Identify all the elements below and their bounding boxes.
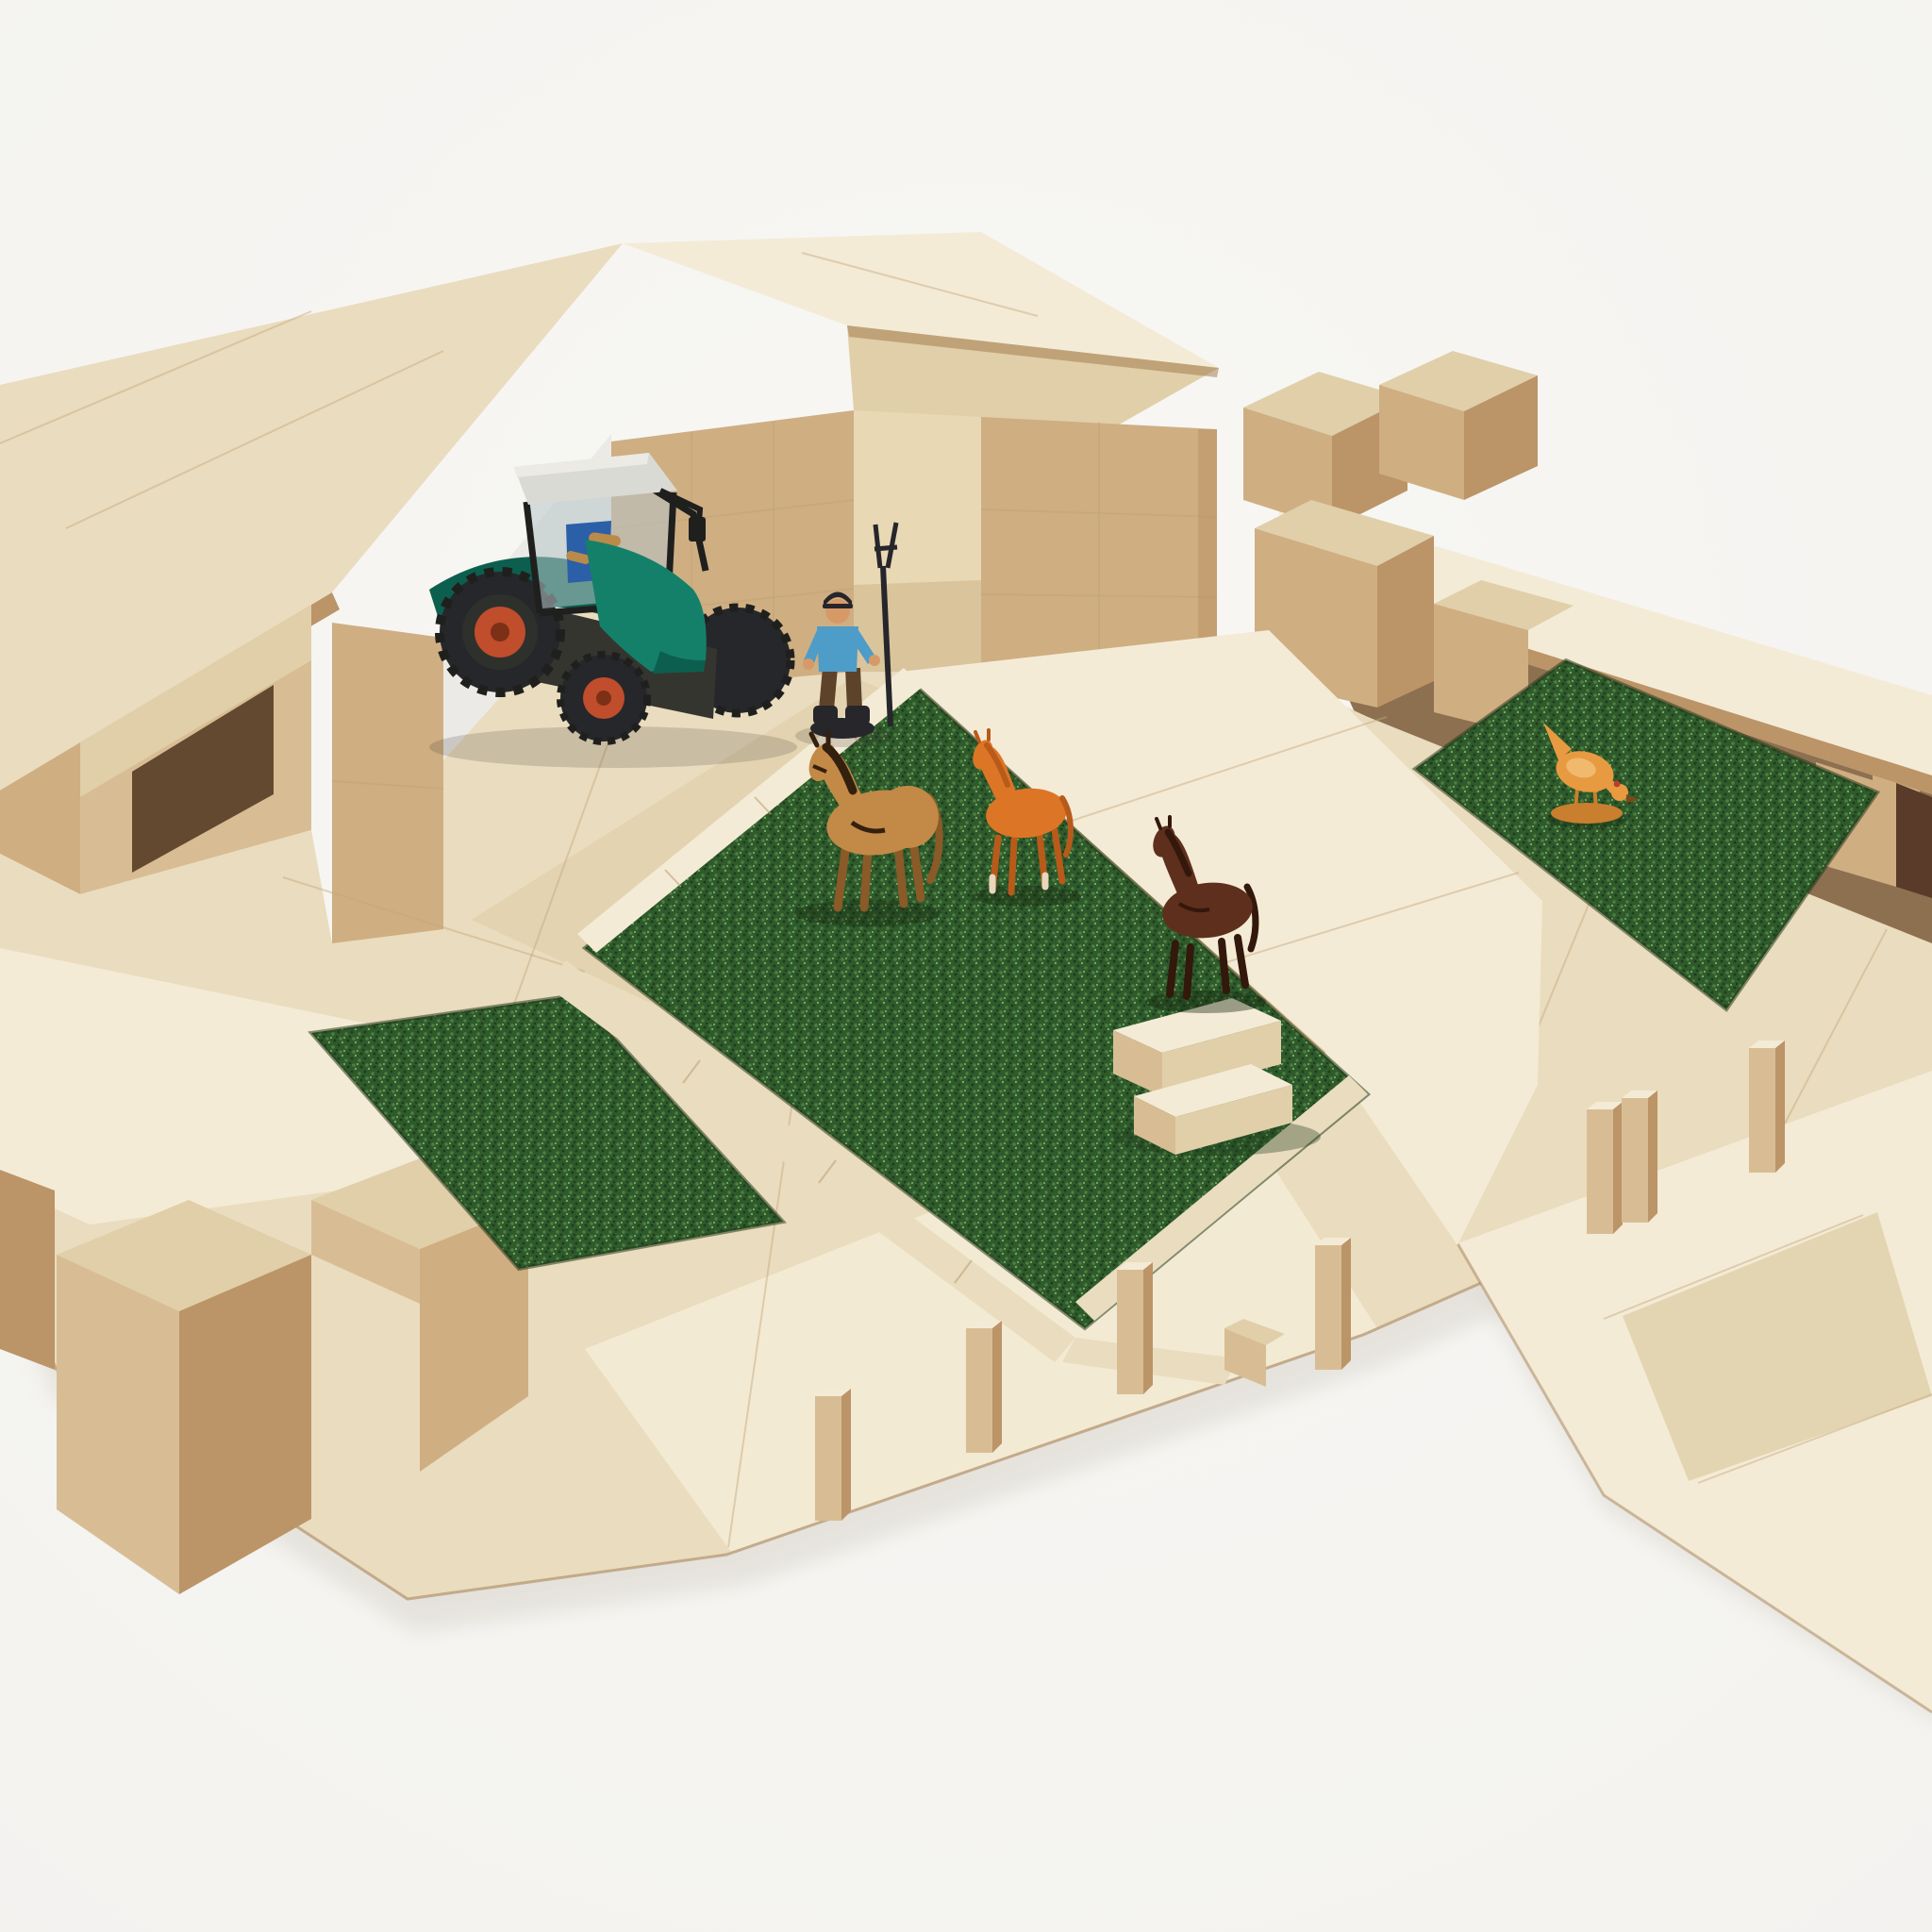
- farmer-head: [825, 599, 850, 624]
- tractor-wheel-front: [560, 655, 647, 741]
- barn-wall-right: [981, 417, 1217, 675]
- product-photo: [0, 0, 1932, 1932]
- chicken-head: [1611, 784, 1628, 801]
- chicken-base: [1551, 803, 1623, 824]
- farmer-shirt: [817, 626, 858, 672]
- chicken-comb: [1614, 781, 1621, 788]
